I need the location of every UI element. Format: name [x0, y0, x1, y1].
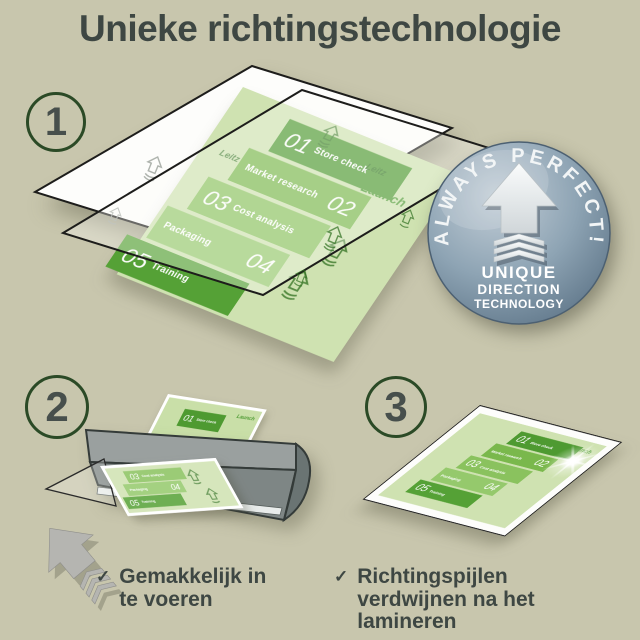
- badge-line-unique: UNIQUE: [481, 263, 556, 282]
- check-icon: ✓: [96, 566, 110, 611]
- infographic-canvas: Unieke richtingstechnologie Launch 01 St…: [0, 0, 640, 640]
- step-1-marker: 1: [26, 92, 86, 152]
- step-3-marker: 3: [365, 376, 427, 438]
- step-2-marker: 2: [25, 375, 89, 439]
- check-icon: ✓: [334, 566, 348, 634]
- checklist-item-arrows-disappear: ✓ Richtingspijlen verdwijnen na het lami…: [334, 566, 609, 634]
- checklist-item-easy-feed: ✓ Gemakkelijk in te voeren: [96, 566, 271, 611]
- badge-line-direction: DIRECTION: [477, 282, 560, 297]
- always-perfect-badge: ALWAYS PERFECT! UNIQUE DIRECTION TECHNOL…: [424, 138, 614, 328]
- badge-line-technology: TECHNOLOGY: [474, 297, 564, 311]
